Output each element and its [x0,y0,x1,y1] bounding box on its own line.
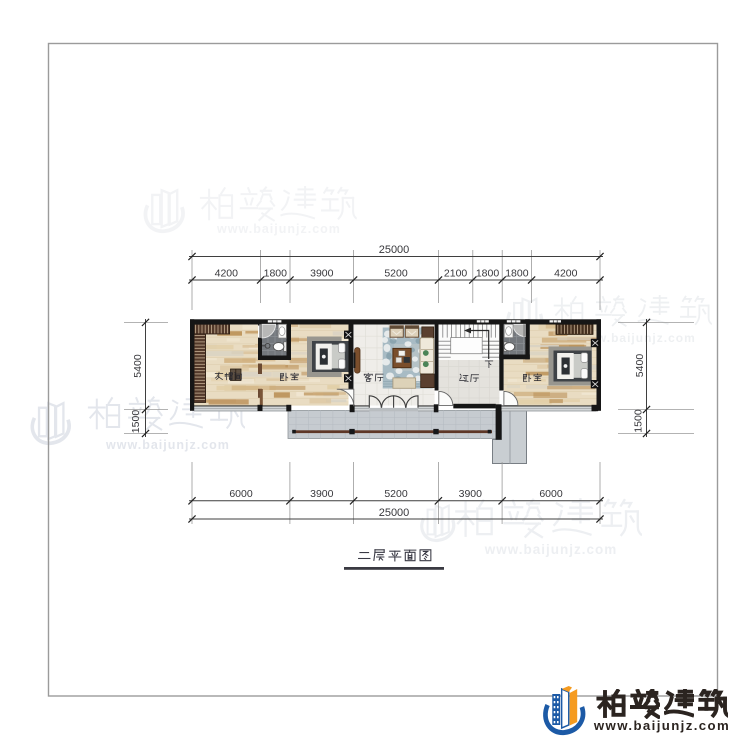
svg-text:5400: 5400 [634,354,646,378]
svg-text:www.baijunjz.com: www.baijunjz.com [105,438,230,452]
svg-text:4200: 4200 [215,268,239,280]
svg-text:5200: 5200 [384,268,408,280]
svg-text:6000: 6000 [539,488,563,500]
svg-text:2100: 2100 [444,268,468,280]
svg-text:5200: 5200 [384,488,408,500]
svg-text:5400: 5400 [132,354,144,378]
svg-text:1500: 1500 [633,409,645,433]
svg-text:3900: 3900 [310,488,334,500]
svg-text:www.baijunjz.com: www.baijunjz.com [216,222,341,236]
svg-text:1500: 1500 [130,410,142,434]
svg-text:25000: 25000 [379,507,410,519]
svg-text:1800: 1800 [476,268,500,280]
svg-text:3900: 3900 [459,488,483,500]
svg-text:www.baijunjz.com: www.baijunjz.com [593,718,730,733]
svg-text:4200: 4200 [554,268,578,280]
svg-text:1800: 1800 [264,268,288,280]
svg-text:3900: 3900 [310,268,334,280]
svg-text:6000: 6000 [229,488,253,500]
svg-text:1800: 1800 [505,268,529,280]
svg-text:25000: 25000 [379,244,410,256]
svg-text:www.baijunjz.com: www.baijunjz.com [484,542,618,557]
